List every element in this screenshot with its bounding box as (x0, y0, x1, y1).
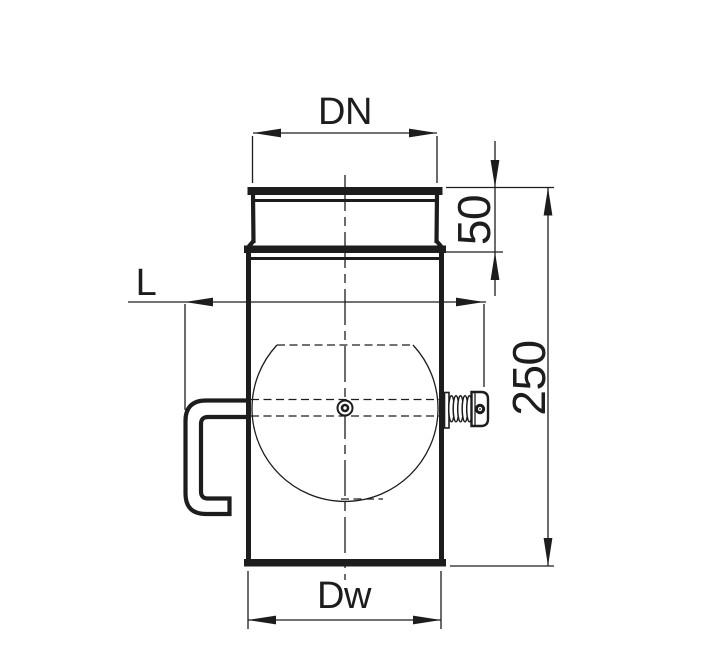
dimension-dw: Dw (248, 571, 441, 629)
dim50-arrow-up (491, 252, 500, 280)
collar-right-wall (437, 195, 438, 243)
dim250-arrow-down (544, 538, 553, 566)
dn-label: DN (318, 91, 372, 133)
bolt-spring-threads (449, 396, 473, 422)
dw-arrow-right (413, 616, 441, 625)
body-top-bead (244, 246, 446, 254)
dimension-50: 50 (446, 141, 554, 296)
damper-handle (186, 401, 252, 515)
body-bottom-edge (244, 559, 446, 567)
dn-arrow-right (409, 129, 437, 138)
pivot-inner-ring (342, 405, 348, 411)
flue-damper-pipe-drawing: DN 50 250 L Dw (0, 0, 722, 672)
dimension-l: L (128, 262, 486, 410)
collar-left-wall (253, 195, 254, 243)
dim250-arrow-up (544, 188, 553, 216)
axle-pivot (338, 401, 353, 416)
collar-top-rim (248, 187, 443, 195)
dimension-dn: DN (253, 91, 438, 183)
dim250-value: 250 (503, 340, 555, 415)
technical-drawing-canvas: DN 50 250 L Dw (0, 0, 722, 672)
dw-arrow-left (248, 616, 276, 625)
l-label: L (136, 262, 157, 304)
dn-arrow-left (253, 129, 281, 138)
dim50-arrow-down (491, 160, 500, 188)
l-arrow-left (185, 298, 213, 307)
dim50-value: 50 (448, 195, 500, 245)
l-arrow-right (456, 298, 484, 307)
bolt-head-socket-dot (479, 408, 481, 410)
dw-label: Dw (317, 575, 372, 617)
locking-bolt (445, 392, 489, 428)
